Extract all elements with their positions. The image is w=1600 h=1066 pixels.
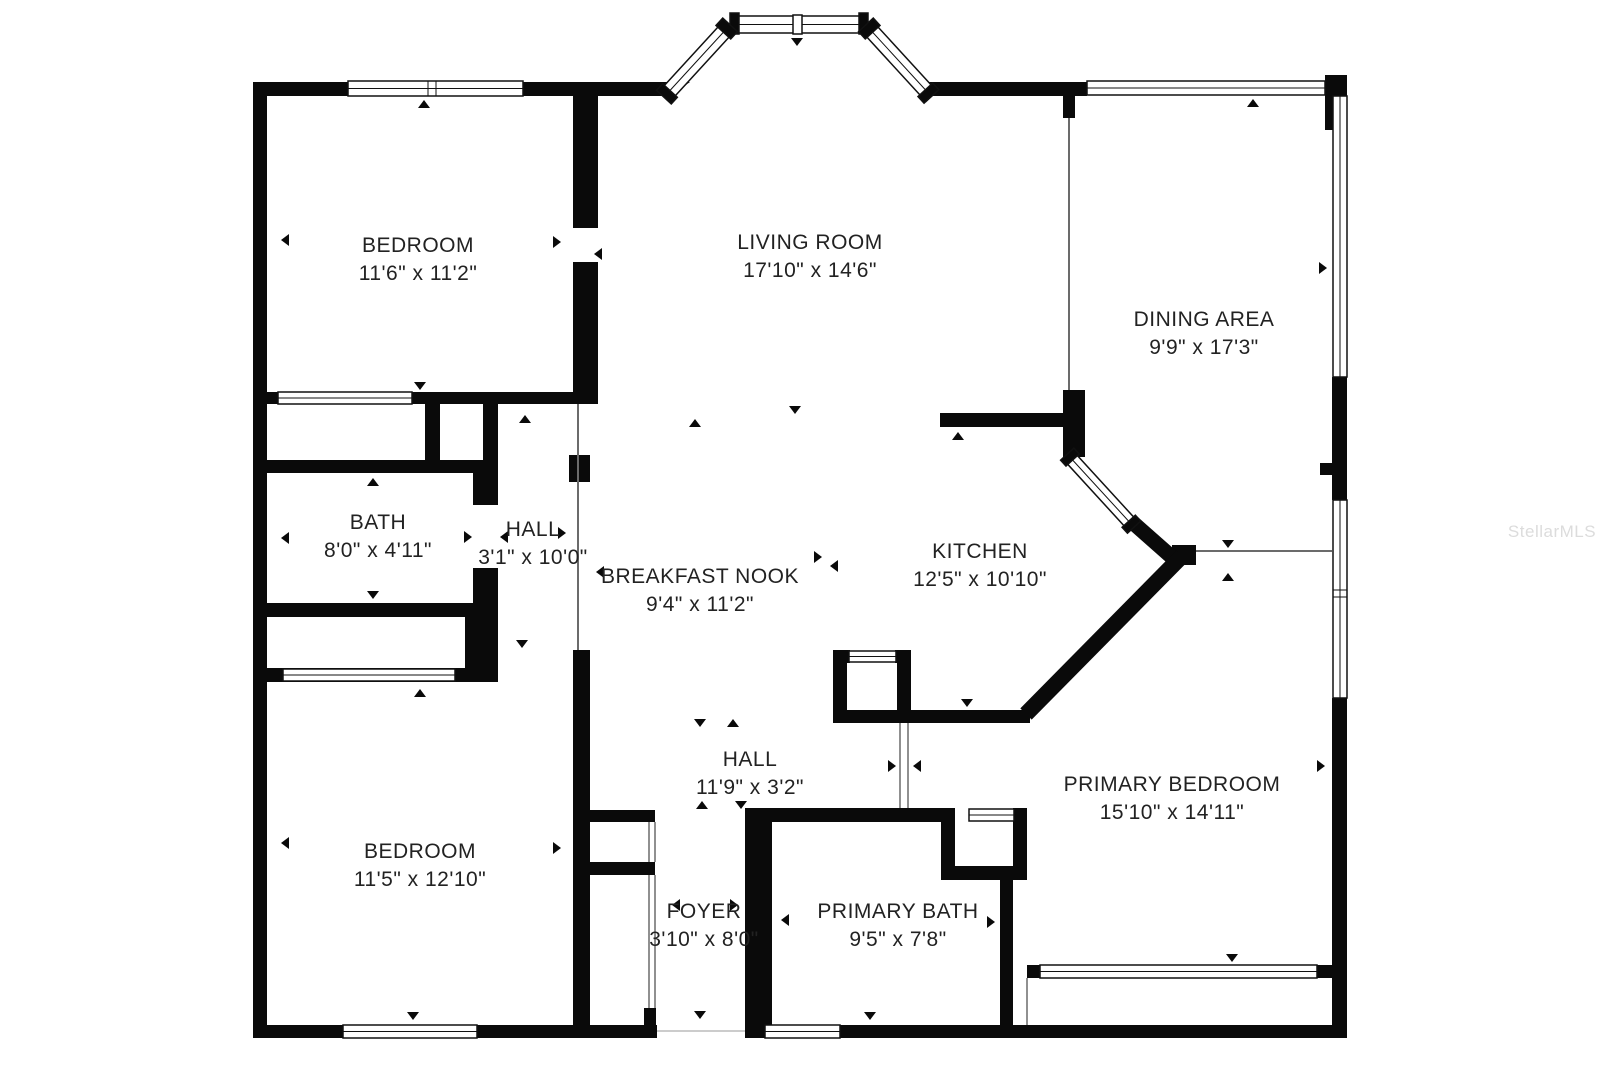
direction-arrow [1247, 99, 1259, 107]
room-label-primary-bath: PRIMARY BATH 9'5" x 7'8" [817, 898, 978, 954]
wall-diagonal [1131, 521, 1174, 559]
wall-segment [1000, 880, 1013, 1025]
direction-arrow [952, 432, 964, 440]
window-primary-bath-bottom [765, 1025, 840, 1038]
room-label-living-room: LIVING ROOM 17'10" x 14'6" [737, 229, 883, 285]
direction-arrow [961, 699, 973, 707]
window-bedroom1-top [348, 81, 523, 96]
direction-arrow [830, 560, 838, 572]
wall-segment [473, 568, 498, 603]
floor-plan: BEDROOM 11'6" x 11'2" LIVING ROOM 17'10"… [0, 0, 1600, 1066]
direction-arrow [814, 551, 822, 563]
wall-segment [941, 808, 955, 866]
room-name: FOYER [649, 898, 759, 926]
wall-segment [483, 404, 498, 462]
wall-segment [1027, 965, 1041, 978]
wall-segment [253, 460, 498, 473]
wall-segment [573, 650, 590, 1038]
wall-segment [253, 82, 267, 1038]
wall-segment [569, 455, 590, 482]
wall-segment [1063, 390, 1085, 457]
closet-door-bedroom2 [283, 669, 455, 681]
direction-arrow [367, 591, 379, 599]
direction-arrow [727, 719, 739, 727]
room-dimensions: 3'1" x 10'0" [478, 544, 588, 572]
primary-bath-closet-door [969, 809, 1014, 821]
wall-segment [253, 603, 498, 617]
direction-arrow [1319, 262, 1327, 274]
wall-segment [587, 862, 655, 875]
wall-segment [253, 82, 348, 96]
window-dining-top [1087, 81, 1325, 95]
wall-segment [745, 1025, 765, 1038]
direction-arrow [694, 719, 706, 727]
wall-segment [644, 1008, 656, 1025]
direction-arrow [791, 38, 803, 46]
direction-arrow [414, 689, 426, 697]
floor-plan-drawing [0, 0, 1600, 1066]
direction-arrow [789, 406, 801, 414]
kitchen-pass-through-window [1061, 448, 1141, 533]
bay-window-left-diagonal [657, 18, 738, 104]
room-dimensions: 11'9" x 3'2" [696, 774, 804, 802]
bay-window-right-diagonal [859, 18, 939, 103]
direction-arrow [735, 801, 747, 809]
wall-segment [840, 1025, 1347, 1038]
room-label-bedroom-1: BEDROOM 11'6" x 11'2" [359, 232, 478, 288]
room-label-kitchen: KITCHEN 12'5" x 10'10" [913, 538, 1047, 594]
room-label-hall-1: HALL 3'1" x 10'0" [478, 516, 588, 572]
room-dimensions: 9'5" x 7'8" [817, 926, 978, 954]
direction-arrow [519, 415, 531, 423]
direction-arrow [781, 914, 789, 926]
direction-arrow [553, 236, 561, 248]
room-name: HALL [696, 746, 804, 774]
room-name: BATH [324, 509, 432, 537]
wall-segment [1320, 463, 1332, 475]
direction-arrow [281, 837, 289, 849]
wall-segment [425, 404, 440, 462]
room-name: HALL [478, 516, 588, 544]
wall-segment [587, 810, 655, 822]
direction-arrow [888, 760, 896, 772]
room-dimensions: 17'10" x 14'6" [737, 257, 883, 285]
direction-arrow [553, 842, 561, 854]
room-label-bath: BATH 8'0" x 4'11" [324, 509, 432, 565]
direction-arrow [1226, 954, 1238, 962]
direction-arrow [1222, 573, 1234, 581]
direction-arrow [864, 1012, 876, 1020]
room-name: PRIMARY BEDROOM [1064, 771, 1281, 799]
room-name: PRIMARY BATH [817, 898, 978, 926]
bay-window-top [730, 13, 868, 34]
room-label-breakfast-nook: BREAKFAST NOOK 9'4" x 11'2" [601, 563, 799, 619]
wall-segment [573, 96, 598, 228]
room-dimensions: 8'0" x 4'11" [324, 537, 432, 565]
direction-arrow [414, 382, 426, 390]
direction-arrow [1222, 540, 1234, 548]
stellar-mls-watermark: StellarMLS [1508, 522, 1596, 542]
wall-segment [940, 413, 1063, 427]
direction-arrow [1317, 760, 1325, 772]
direction-arrow [516, 640, 528, 648]
direction-arrow [367, 478, 379, 486]
wall-segment [745, 808, 955, 822]
room-dimensions: 11'5" x 12'10" [354, 866, 486, 894]
room-label-hall-2: HALL 11'9" x 3'2" [696, 746, 804, 802]
direction-arrow [689, 419, 701, 427]
direction-arrow [694, 1011, 706, 1019]
wall-segment [833, 710, 1030, 723]
direction-arrow [913, 760, 921, 772]
room-dimensions: 15'10" x 14'11" [1064, 799, 1281, 827]
room-name: BEDROOM [359, 232, 478, 260]
window-right-middle [1333, 500, 1347, 698]
direction-arrow [987, 916, 995, 928]
wall-segment [477, 1025, 657, 1038]
pantry-door [849, 651, 896, 662]
room-label-primary-bedroom: PRIMARY BEDROOM 15'10" x 14'11" [1064, 771, 1281, 827]
direction-arrow [418, 100, 430, 108]
window-primary-bedroom-bottom [1040, 965, 1317, 978]
direction-arrow [407, 1012, 419, 1020]
room-name: KITCHEN [913, 538, 1047, 566]
wall-segment [473, 473, 498, 505]
wall-diagonal [1026, 556, 1182, 714]
window-dining-right [1333, 96, 1347, 377]
room-dimensions: 9'4" x 11'2" [601, 591, 799, 619]
room-name: DINING AREA [1134, 306, 1275, 334]
room-dimensions: 12'5" x 10'10" [913, 566, 1047, 594]
wall-segment [1332, 698, 1347, 1038]
wall-segment [1013, 808, 1027, 880]
room-name: BEDROOM [354, 838, 486, 866]
room-name: BREAKFAST NOOK [601, 563, 799, 591]
direction-arrow [464, 531, 472, 543]
wall-segment [253, 1025, 343, 1038]
wall-segment [412, 392, 598, 404]
direction-arrow [594, 248, 602, 260]
closet-door-bedroom1 [278, 392, 412, 404]
room-dimensions: 9'9" x 17'3" [1134, 334, 1275, 362]
room-name: LIVING ROOM [737, 229, 883, 257]
wall-segment [1063, 82, 1075, 118]
room-dimensions: 11'6" x 11'2" [359, 260, 478, 288]
direction-arrow [281, 532, 289, 544]
room-label-bedroom-2: BEDROOM 11'5" x 12'10" [354, 838, 486, 894]
wall-segment [573, 262, 598, 392]
window-bedroom2-bottom [343, 1025, 477, 1038]
room-label-foyer: FOYER 3'10" x 8'0" [649, 898, 759, 954]
wall-segment [253, 392, 278, 404]
room-label-dining-area: DINING AREA 9'9" x 17'3" [1134, 306, 1275, 362]
direction-arrow [281, 234, 289, 246]
wall-segment [523, 82, 650, 96]
wall-segment [1332, 377, 1347, 500]
direction-arrow [696, 801, 708, 809]
room-dimensions: 3'10" x 8'0" [649, 926, 759, 954]
